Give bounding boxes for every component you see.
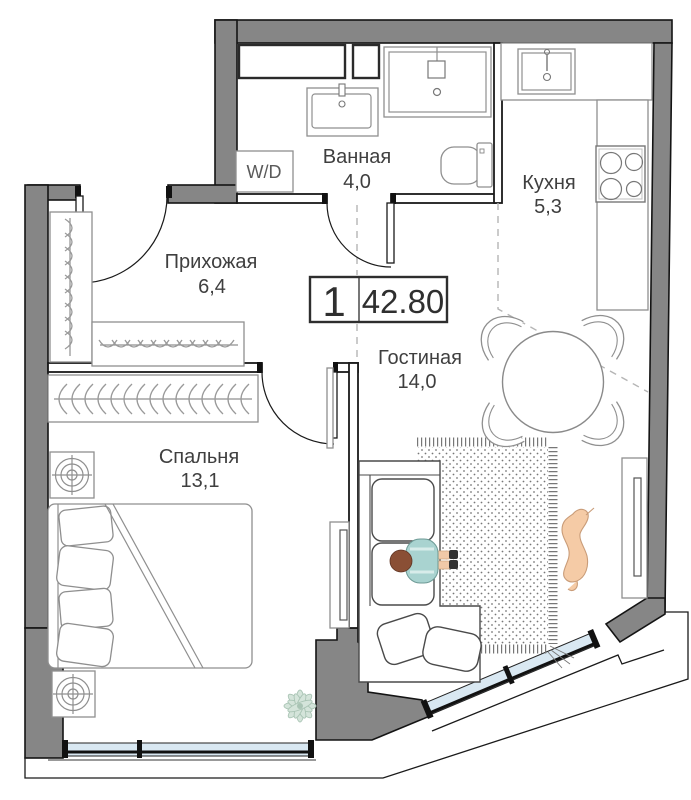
bathroom-area: 4,0 [343,171,371,193]
tv-console [330,522,349,628]
wall-top [215,20,672,43]
person-head [390,550,412,572]
bedroom-name: Спальня [159,446,239,468]
plant [284,690,316,722]
bedroom-window [48,740,316,760]
wall-bedroom-living [349,363,358,628]
bedroom-door [262,372,337,444]
toilet-icon [441,143,492,187]
jamb [257,362,262,373]
hallway-area: 6,4 [198,276,226,298]
wall-corner-diagonal [606,598,665,642]
nightstand-lamp [50,452,94,498]
bathroom-door [327,203,394,267]
jamb [322,193,327,204]
floorplan-canvas: W/D [0,0,691,800]
washer-dryer-box: W/D [236,151,293,192]
shower-icon [384,47,491,117]
bathroom-fixtures: W/D [236,45,492,192]
wall-bathroom-left [215,20,237,203]
nightstand-lamp [52,671,95,717]
right-wall-console [622,458,647,598]
dining-table [503,332,604,433]
bedroom-furniture [48,368,349,717]
dining-set [470,304,636,459]
kitchen-sink-icon [518,49,575,94]
wall-left [25,185,48,628]
wall-bathroom-bottom-left [237,194,327,203]
floorplan-svg: W/D [0,0,691,800]
bedroom-area: 13,1 [181,470,220,492]
living-name: Гостиная [378,347,462,369]
washer-dryer-label: W/D [247,162,282,182]
wall-right [647,43,672,612]
hallway-name: Прихожая [165,251,258,273]
shoe [449,550,458,559]
bathroom-name: Ванная [323,146,392,168]
dog [562,508,594,591]
badge-total-area: 42.80 [362,283,445,320]
wall-hallway-top-arm [168,185,237,203]
badge-rooms-count: 1 [322,278,345,325]
bedroom-wardrobe [48,375,258,422]
stove-icon [596,146,645,202]
bathroom-sink-icon [307,84,378,136]
kitchen-counter-right [597,100,648,310]
shaft-box-small [353,45,379,78]
apartment-badge: 1 42.80 [310,277,447,325]
kitchen-area: 5,3 [534,196,562,218]
living-area: 14,0 [398,371,437,393]
wardrobe-horizontal [92,322,244,366]
kitchen-name: Кухня [522,172,576,194]
shaft-box [239,45,345,78]
shoe [449,560,458,569]
bed [48,504,252,668]
wall-bathroom-bottom-right [391,194,495,203]
wall-tv-icon [327,368,333,448]
wardrobe-vertical [50,212,92,362]
